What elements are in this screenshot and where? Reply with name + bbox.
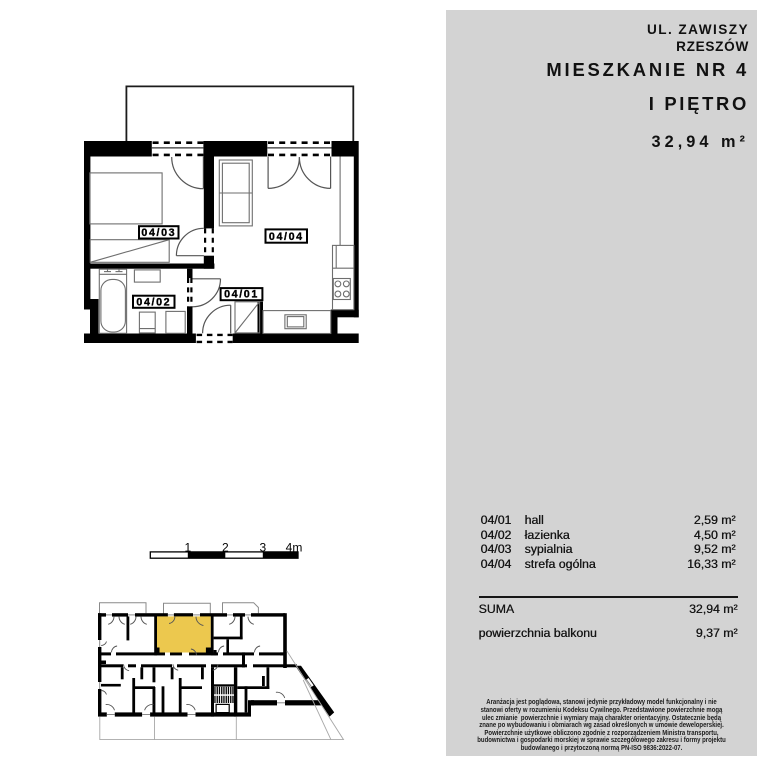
svg-text:04/04: 04/04 <box>269 231 304 243</box>
svg-text:2: 2 <box>222 541 229 555</box>
svg-text:4m: 4m <box>286 541 303 555</box>
svg-text:3: 3 <box>259 541 266 555</box>
svg-text:04/02: 04/02 <box>136 296 171 308</box>
svg-text:04/03: 04/03 <box>141 227 176 239</box>
svg-text:04/01: 04/01 <box>224 289 259 301</box>
svg-text:1: 1 <box>184 541 191 555</box>
